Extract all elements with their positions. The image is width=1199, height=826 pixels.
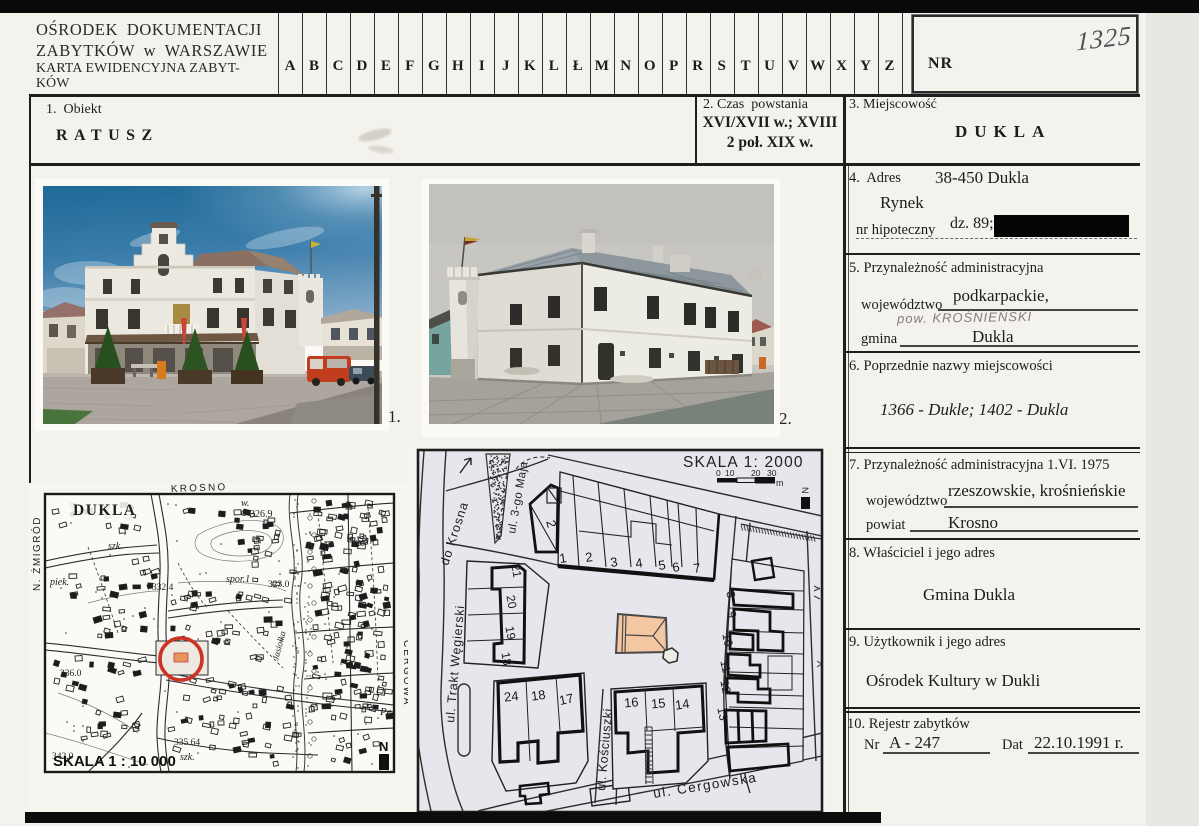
svg-text:19: 19	[502, 625, 518, 641]
svg-text:16: 16	[623, 694, 639, 710]
svg-text:N: N	[379, 739, 388, 754]
svg-text:30: 30	[767, 468, 777, 478]
svg-text:15: 15	[650, 695, 666, 711]
svg-text:17: 17	[558, 690, 575, 708]
svg-text:10: 10	[725, 468, 735, 478]
svg-text:SKALA 1: 2000: SKALA 1: 2000	[683, 454, 804, 471]
svg-text:SKALA 1 : 10 000: SKALA 1 : 10 000	[53, 753, 176, 770]
svg-text:21: 21	[508, 563, 524, 579]
svg-text:N: N	[800, 487, 810, 494]
svg-text:18: 18	[498, 651, 514, 667]
svg-text:KROSNO: KROSNO	[171, 483, 228, 495]
svg-text:szk.: szk.	[108, 541, 123, 552]
svg-text:szk.: szk.	[180, 752, 195, 763]
svg-text:m: m	[776, 478, 784, 488]
svg-text:Pę: Pę	[379, 706, 392, 718]
svg-text:w.: w.	[241, 498, 249, 509]
svg-text:20: 20	[503, 594, 519, 610]
svg-text:323.0: 323.0	[268, 580, 290, 590]
svg-text:14: 14	[674, 696, 690, 713]
svg-text:24: 24	[503, 688, 519, 704]
svg-text:18: 18	[530, 687, 546, 704]
svg-text:piek.: piek.	[49, 577, 69, 588]
svg-text:0: 0	[716, 468, 721, 478]
svg-text:326.9: 326.9	[250, 509, 273, 520]
svg-text:336.0: 336.0	[60, 669, 82, 679]
svg-text:spor.1: spor.1	[226, 574, 250, 585]
svg-text:DUKLA: DUKLA	[73, 502, 136, 519]
svg-text:N. ŻMIGRÓD: N. ŻMIGRÓD	[30, 516, 43, 591]
svg-text:335.64: 335.64	[174, 738, 200, 748]
svg-text:332.4: 332.4	[152, 583, 174, 593]
svg-text:20: 20	[751, 468, 761, 478]
